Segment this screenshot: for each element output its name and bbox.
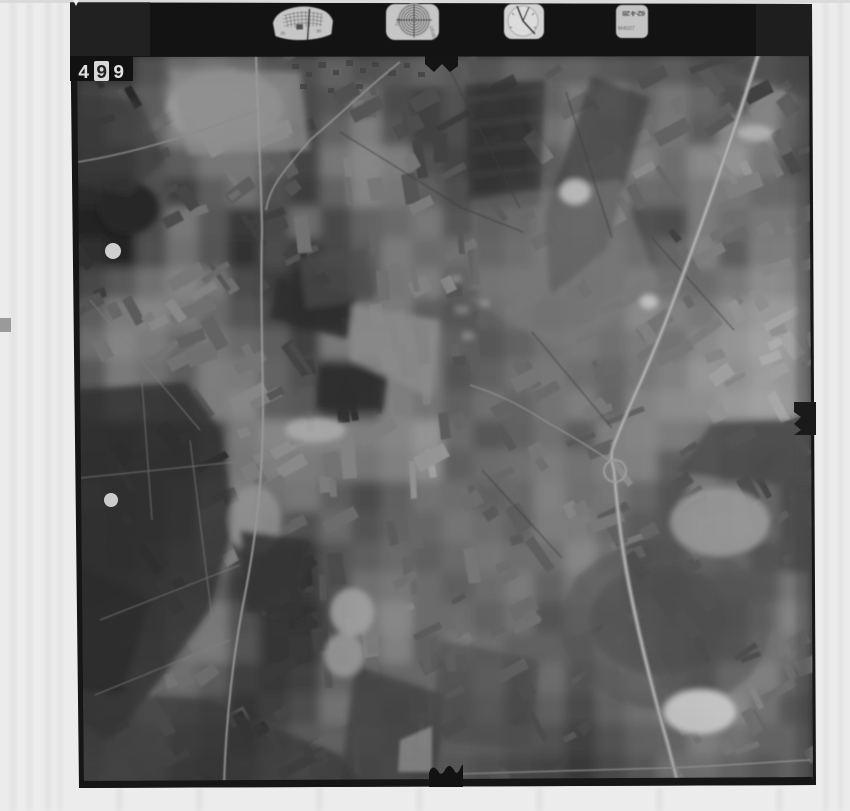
svg-text:62·4·28: 62·4·28 bbox=[622, 9, 645, 18]
svg-text:25: 25 bbox=[280, 31, 286, 36]
svg-text:30: 30 bbox=[316, 28, 322, 33]
svg-text:4: 4 bbox=[78, 62, 89, 84]
svg-text:9: 9 bbox=[113, 62, 124, 84]
svg-text:9: 9 bbox=[96, 62, 107, 84]
svg-text:M4507: M4507 bbox=[618, 26, 635, 32]
